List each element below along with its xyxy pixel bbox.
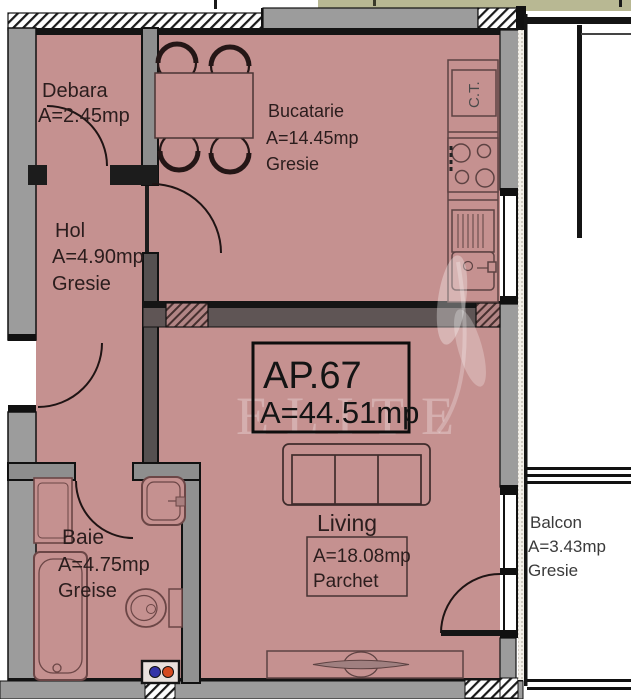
- dimension-tick: [214, 0, 217, 9]
- corner-column: [500, 678, 518, 698]
- room-label-debara-name: Debara: [42, 80, 108, 102]
- apartment-area: A=44.51mp: [260, 395, 419, 430]
- kitchen-door-leaf: [145, 186, 149, 252]
- heating-manifold-box: [142, 661, 179, 683]
- room-label-bucatarie-area: A=14.45mp: [266, 128, 359, 148]
- balcony-door-leaf: [441, 630, 500, 636]
- bottom-wall: [0, 681, 523, 699]
- floor-plan: ELITE Debara A=2.45mp Bucatarie A=14.45m…: [0, 0, 631, 699]
- wall-hol-living: [143, 253, 158, 463]
- facade-line: [524, 14, 528, 686]
- sofa: [283, 444, 430, 505]
- top-wall-column: [478, 8, 518, 30]
- room-label-baie-floor: Greise: [58, 580, 117, 602]
- balcony-floor-line: [527, 679, 631, 682]
- room-label-hol-floor: Gresie: [52, 273, 111, 295]
- beam-column: [476, 303, 500, 327]
- balcony-floor-line: [527, 687, 631, 690]
- neighbor-edge-line: [581, 33, 631, 35]
- room-label-bucatarie-name: Bucatarie: [268, 101, 344, 121]
- top-wall-gray: [263, 8, 478, 30]
- insulation-strip: [518, 30, 525, 680]
- wall-debara-bottom-left: [28, 165, 47, 185]
- top-edge-line-right: [526, 17, 631, 24]
- room-label-living-floor: Parchet: [313, 571, 379, 592]
- door-opening-debara: [47, 163, 110, 187]
- room-label-balcon-name: Balcon: [530, 513, 582, 532]
- room-label-living-name: Living: [317, 510, 377, 536]
- room-label-baie-name: Baie: [62, 526, 104, 549]
- door-opening-baie: [75, 463, 133, 480]
- balcony-edge-line: [527, 467, 631, 470]
- room-label-bucatarie-floor: Gresie: [266, 154, 319, 174]
- dimension-tick: [373, 0, 376, 6]
- toilet: [126, 589, 182, 627]
- room-label-baie-area: A=4.75mp: [58, 554, 150, 576]
- left-wall-lower: [8, 412, 36, 683]
- room-label-debara-area: A=2.45mp: [38, 105, 130, 127]
- balcony-edge-line: [527, 481, 631, 484]
- right-wall-bottom: [500, 638, 516, 680]
- neighbor-wall-line: [577, 25, 582, 238]
- room-label-balcon-floor: Gresie: [528, 561, 578, 580]
- ct-boiler-label: C.T.: [466, 81, 483, 108]
- living-window: [267, 651, 463, 678]
- room-label-living-area: A=18.08mp: [313, 546, 411, 567]
- valve-red: [163, 667, 174, 678]
- dimension-tick: [619, 0, 622, 7]
- room-label-hol-name: Hol: [55, 220, 85, 242]
- bath-sink: [142, 477, 185, 525]
- beam-column: [166, 303, 208, 327]
- stove: [448, 138, 498, 192]
- top-wall-inner-line: [8, 28, 522, 35]
- entrance-jamb-bottom: [8, 405, 36, 412]
- entrance-jamb-top: [8, 334, 36, 341]
- bottom-wall-column: [145, 683, 175, 699]
- wall-debara-bottom-right: [110, 165, 158, 185]
- top-wall-hatched: [8, 13, 263, 30]
- valve-blue: [150, 667, 161, 678]
- room-fill-hol: [36, 185, 143, 463]
- room-label-balcon-area: A=3.43mp: [528, 537, 606, 556]
- balcony-edge-line: [527, 474, 631, 477]
- kitchen-table: [155, 73, 253, 138]
- room-label-hol-area: A=4.90mp: [52, 246, 144, 268]
- apartment-id: AP.67: [263, 355, 362, 397]
